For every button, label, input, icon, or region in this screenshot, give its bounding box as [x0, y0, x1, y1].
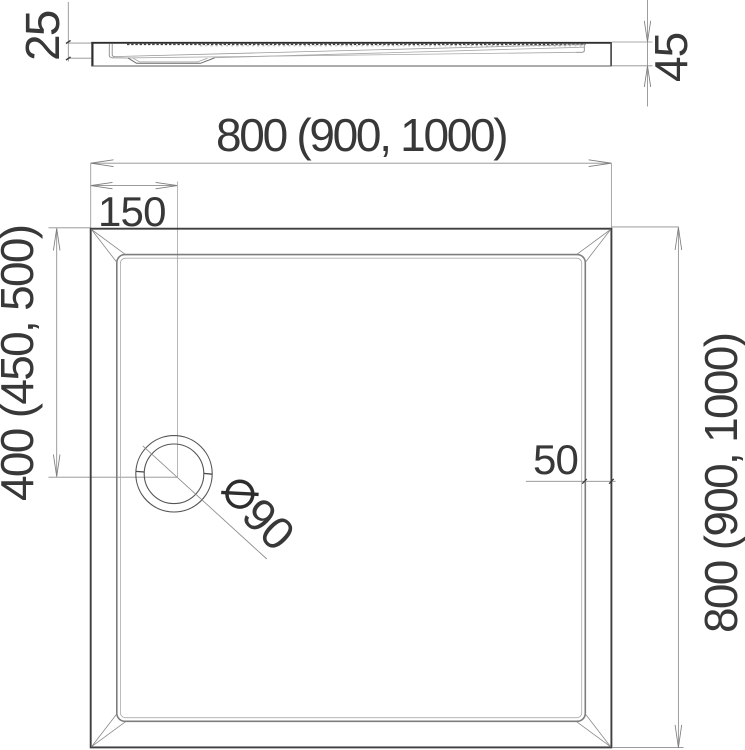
svg-text:800 (900, 1000): 800 (900, 1000) — [216, 109, 506, 161]
svg-text:400 (450, 500): 400 (450, 500) — [0, 226, 43, 501]
svg-text:45: 45 — [645, 33, 697, 82]
svg-text:25: 25 — [17, 11, 70, 61]
svg-text:50: 50 — [533, 436, 578, 483]
svg-text:800 (900, 1000): 800 (900, 1000) — [695, 334, 745, 633]
